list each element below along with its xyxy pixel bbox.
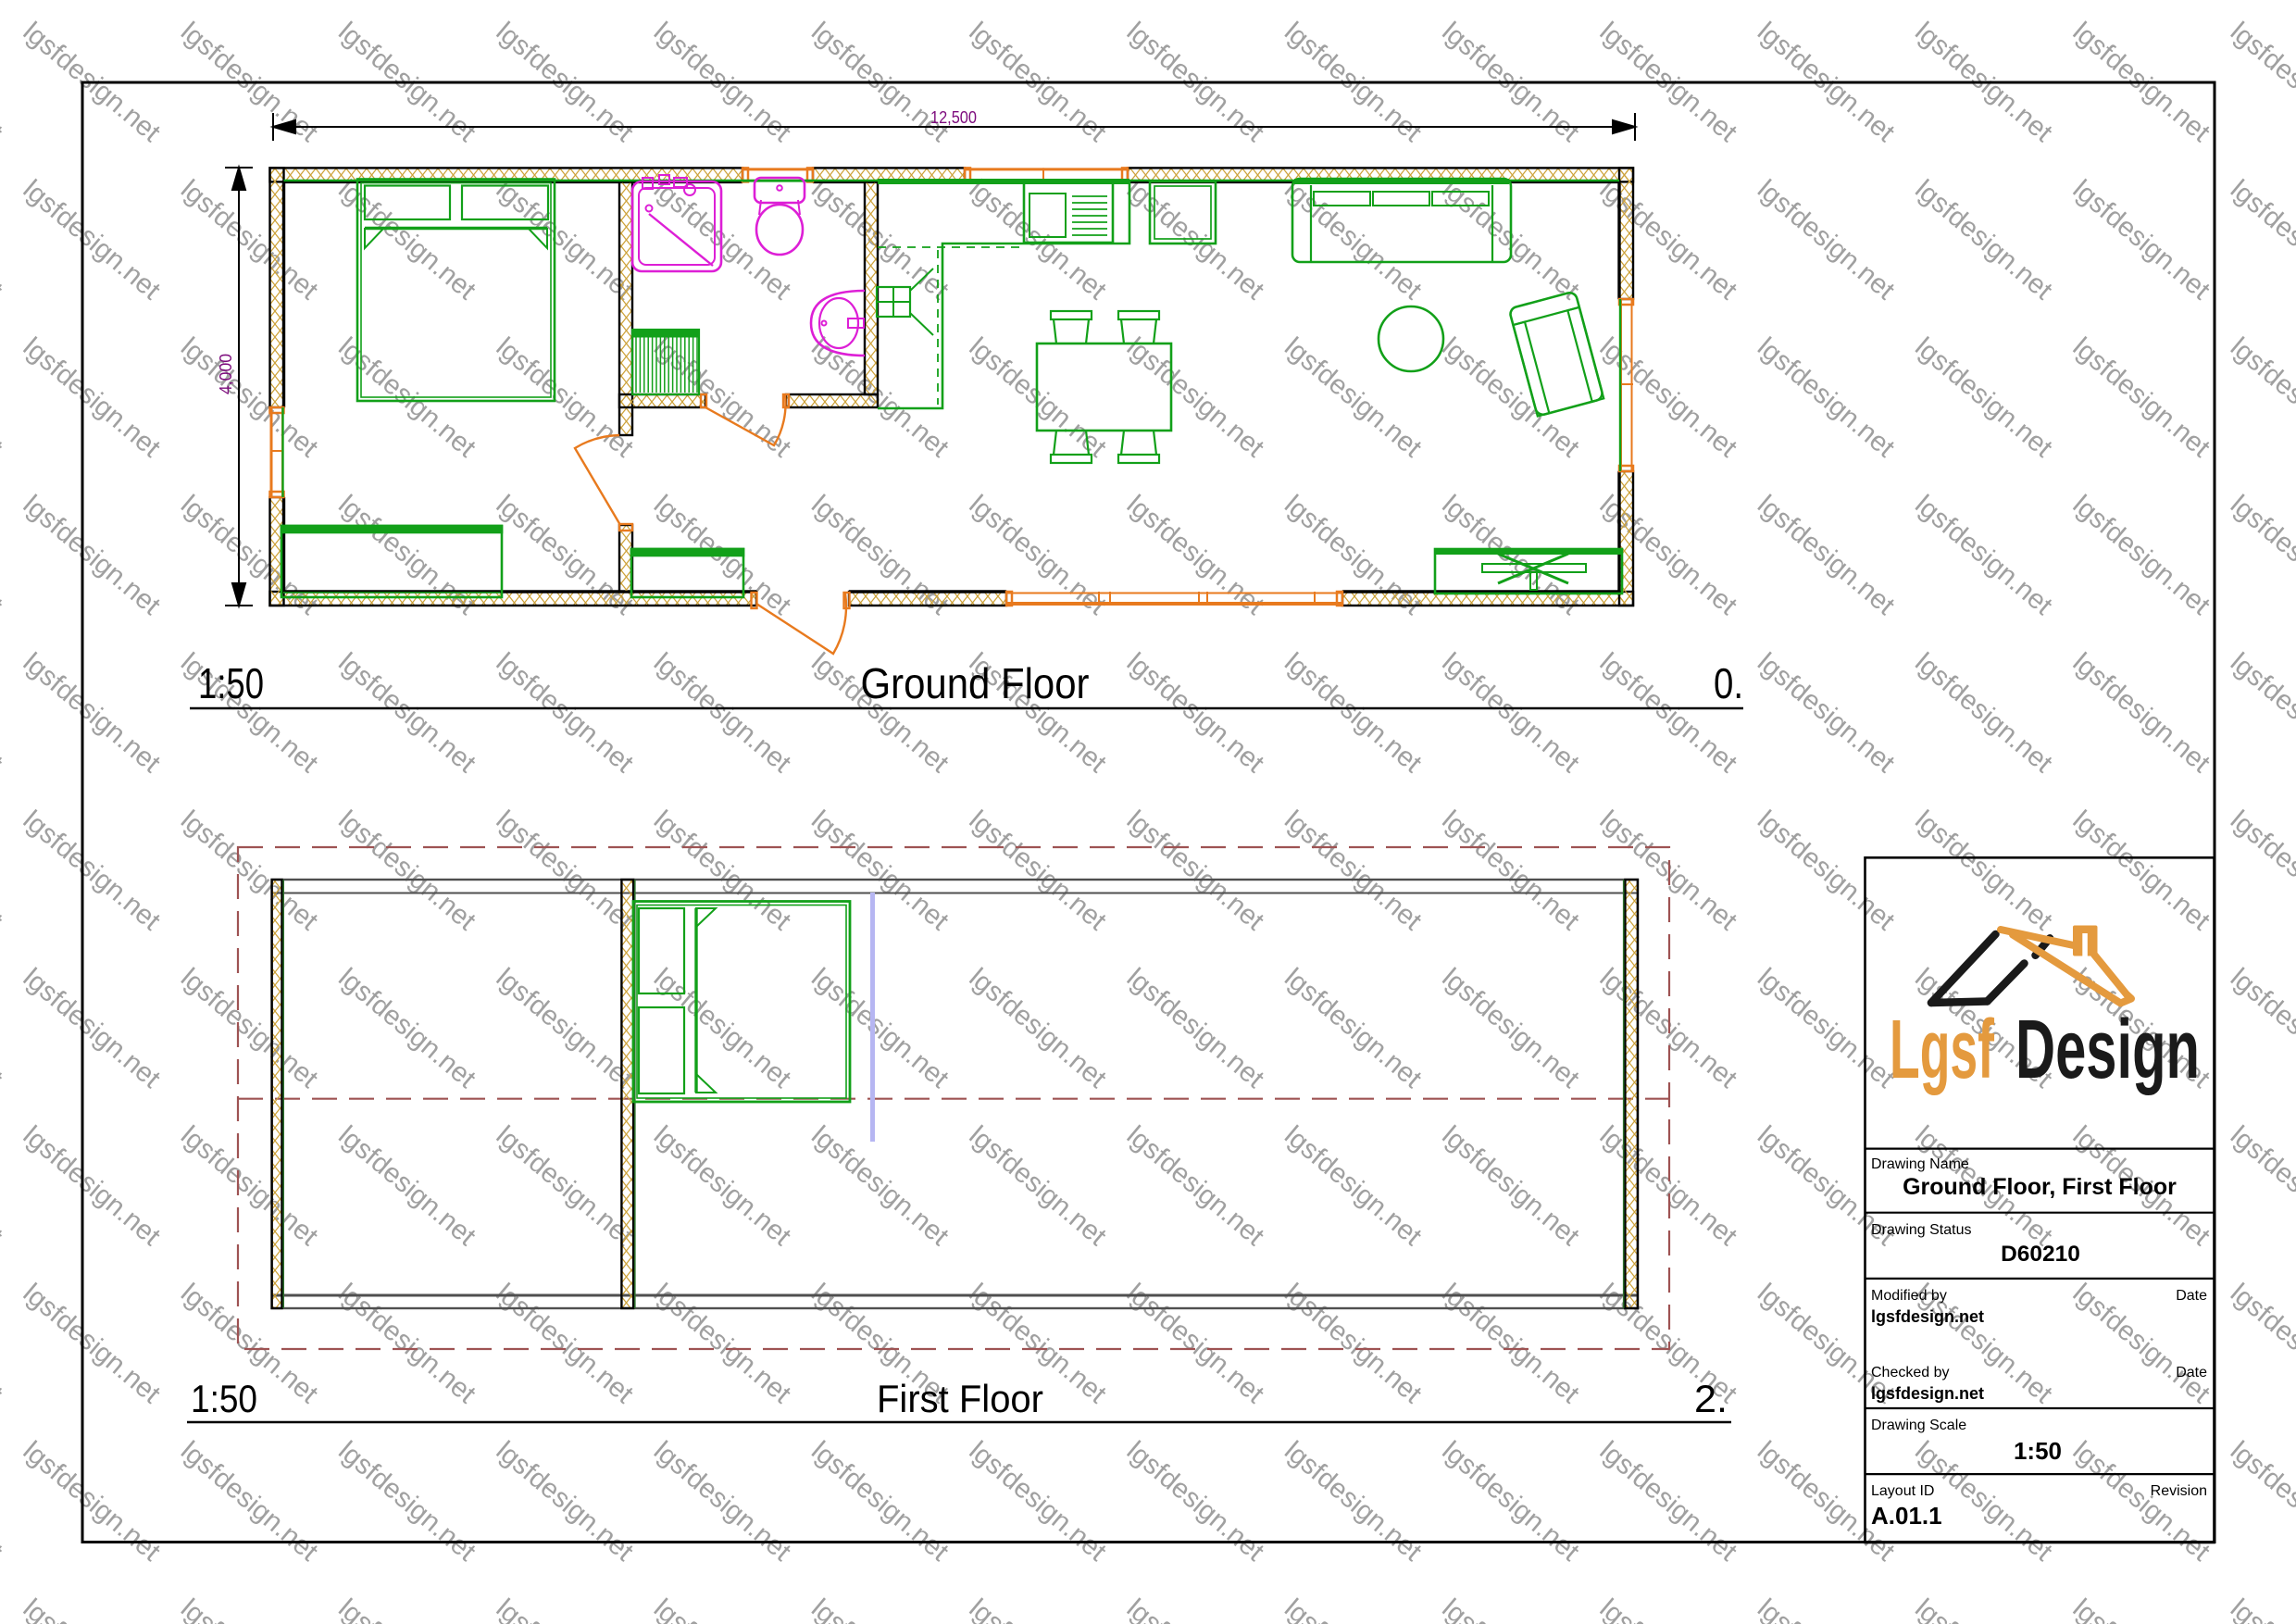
svg-text:0.: 0. [1714, 659, 1743, 707]
svg-text:1:50: 1:50 [198, 659, 264, 707]
svg-text:12,500: 12,500 [930, 108, 977, 127]
svg-text:Ground Floor, First Floor: Ground Floor, First Floor [1903, 1174, 2177, 1200]
svg-text:Drawing Status: Drawing Status [1871, 1222, 1972, 1238]
svg-text:lgsfdesign.net: lgsfdesign.net [1871, 1384, 1984, 1403]
svg-text:4,000: 4,000 [217, 354, 235, 394]
svg-text:A.01.1: A.01.1 [1871, 1502, 1942, 1530]
svg-text:Layout ID: Layout ID [1871, 1483, 1934, 1499]
svg-text:Date: Date [2176, 1365, 2207, 1380]
svg-text:Drawing Scale: Drawing Scale [1871, 1418, 1966, 1433]
svg-text:lgsfdesign.net: lgsfdesign.net [1871, 1307, 1984, 1326]
svg-text:D60210: D60210 [2001, 1242, 2080, 1267]
svg-text:Lgsf: Lgsf [1890, 1004, 1995, 1096]
svg-text:Revision: Revision [2151, 1483, 2207, 1499]
svg-text:Modified by: Modified by [1871, 1288, 1947, 1304]
svg-text:Date: Date [2176, 1288, 2207, 1304]
svg-text:Checked by: Checked by [1871, 1365, 1950, 1380]
svg-text:First Floor: First Floor [877, 1377, 1043, 1420]
svg-text:1:50: 1:50 [2014, 1437, 2062, 1465]
svg-text:Drawing Name: Drawing Name [1871, 1156, 1969, 1172]
svg-text:1:50: 1:50 [191, 1377, 257, 1420]
svg-text:Ground Floor: Ground Floor [861, 659, 1090, 707]
svg-text:Design: Design [2015, 1004, 2200, 1096]
svg-text:2.: 2. [1694, 1377, 1728, 1420]
